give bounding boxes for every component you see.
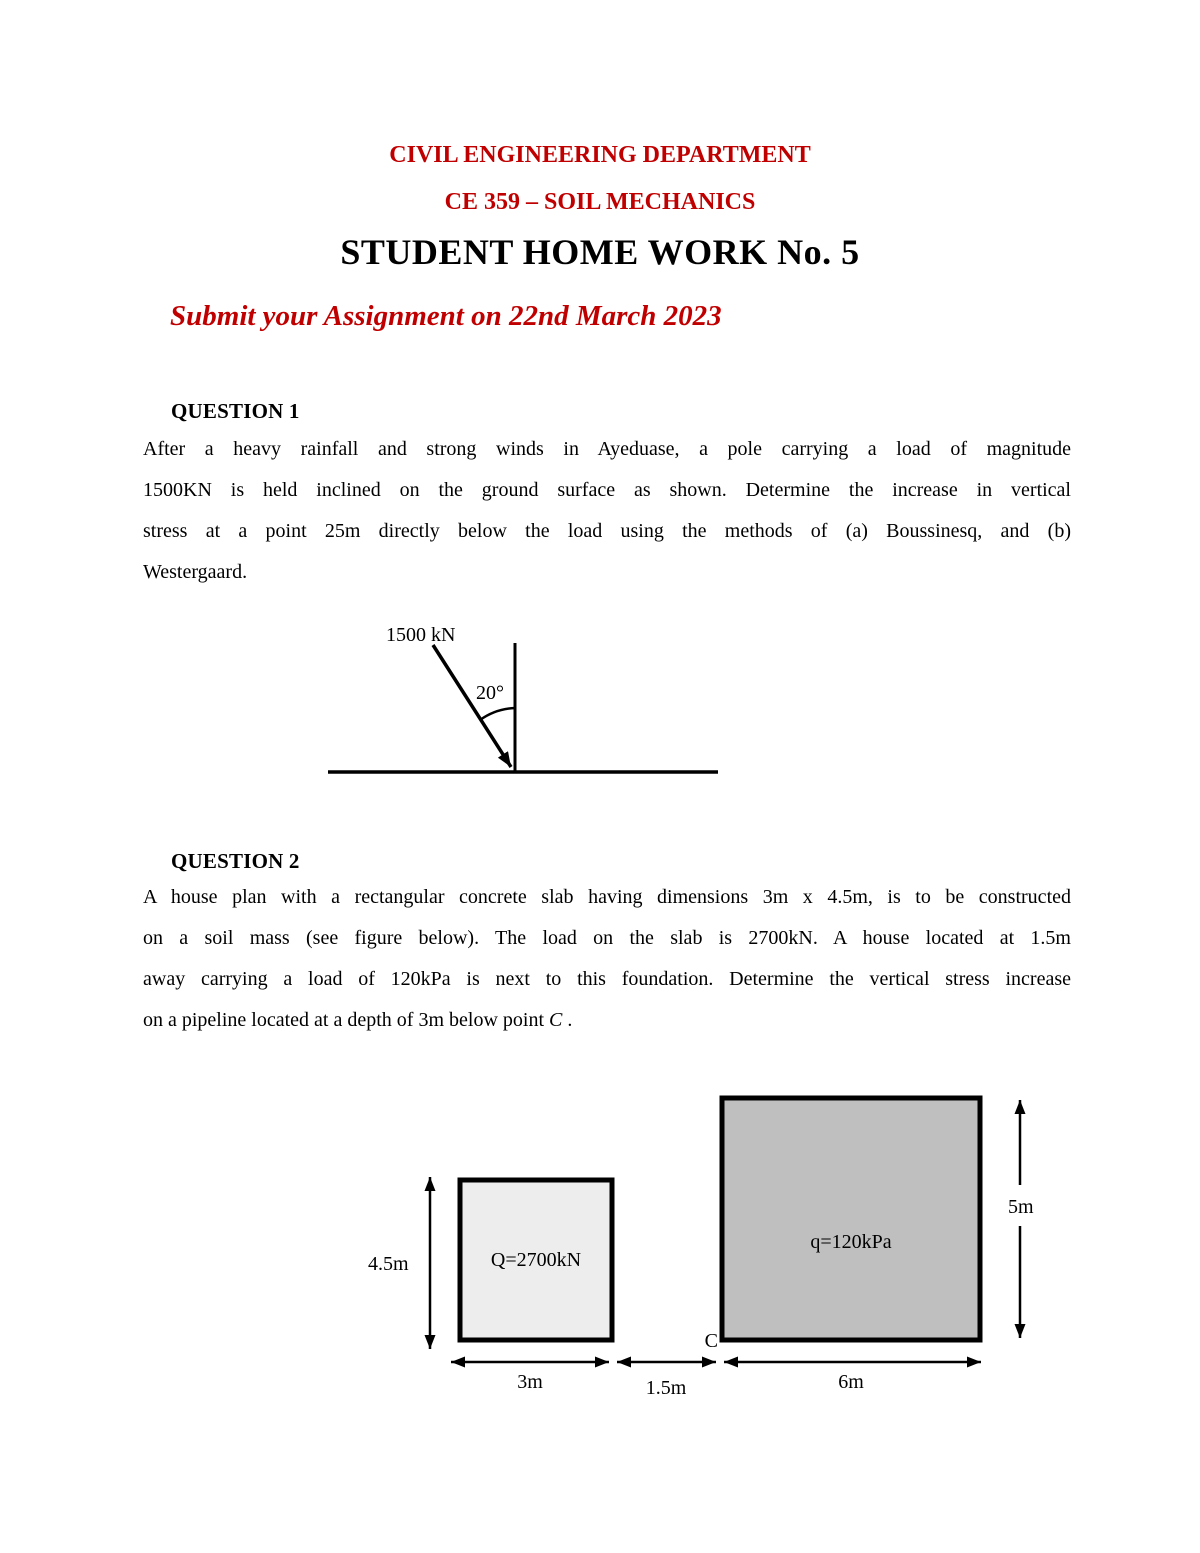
homework-title: STUDENT HOME WORK No. 5 <box>0 231 1200 273</box>
paragraph-line: 1500KN is held inclined on the ground su… <box>143 470 1071 511</box>
slab-load-label: Q=2700kN <box>491 1249 581 1271</box>
inclined-force-arrow <box>433 645 511 767</box>
house-load-label: q=120kPa <box>810 1231 891 1253</box>
bottom-dimension-1-5m-label: 1.5m <box>646 1377 687 1399</box>
course-title: CE 359 – SOIL MECHANICS <box>0 189 1200 216</box>
paragraph-line: on a soil mass (see figure below). The l… <box>143 918 1071 959</box>
bottom-dimension-3m-label: 3m <box>517 1371 543 1393</box>
bottom-dimension-6m-label: 6m <box>838 1371 864 1393</box>
paragraph-line: stress at a point 25m directly below the… <box>143 511 1071 552</box>
load-value-label: 1500 kN <box>386 624 455 646</box>
question1-paragraph: After a heavy rainfall and strong winds … <box>143 429 1071 593</box>
last-line-suffix: . <box>562 1009 572 1031</box>
paragraph-line: away carrying a load of 120kPa is next t… <box>143 959 1071 1000</box>
department-title: CIVIL ENGINEERING DEPARTMENT <box>0 142 1200 169</box>
point-c-italic: C <box>549 1009 562 1031</box>
angle-label: 20° <box>476 682 504 704</box>
question1-heading: QUESTION 1 <box>171 399 300 424</box>
question2-justified-lines: A house plan with a rectangular concrete… <box>143 877 1071 1000</box>
paragraph-line: After a heavy rainfall and strong winds … <box>143 429 1071 470</box>
right-height-dimension-label: 5m <box>1008 1196 1034 1218</box>
figure-inclined-load: 1500 kN 20° <box>300 610 740 800</box>
question1-justified-lines: After a heavy rainfall and strong winds … <box>143 429 1071 552</box>
question2-paragraph: A house plan with a rectangular concrete… <box>143 877 1071 1041</box>
house-rect <box>722 1098 980 1340</box>
figure-slab-plan: 4.5m Q=2700kN q=120kPa C 5m 3m 1.5m 6m <box>360 1080 1060 1410</box>
document-page: CIVIL ENGINEERING DEPARTMENT CE 359 – SO… <box>0 0 1200 1553</box>
question2-last-line: on a pipeline located at a depth of 3m b… <box>143 1000 1071 1041</box>
question1-last-line: Westergaard. <box>143 552 1071 593</box>
angle-arc <box>480 708 515 720</box>
last-line-prefix: on a pipeline located at a depth of 3m b… <box>143 1009 549 1031</box>
question2-heading: QUESTION 2 <box>171 849 300 874</box>
point-c-label: C <box>705 1330 718 1352</box>
submit-deadline: Submit your Assignment on 22nd March 202… <box>170 300 722 333</box>
paragraph-line: A house plan with a rectangular concrete… <box>143 877 1071 918</box>
left-height-dimension-label: 4.5m <box>368 1253 409 1275</box>
